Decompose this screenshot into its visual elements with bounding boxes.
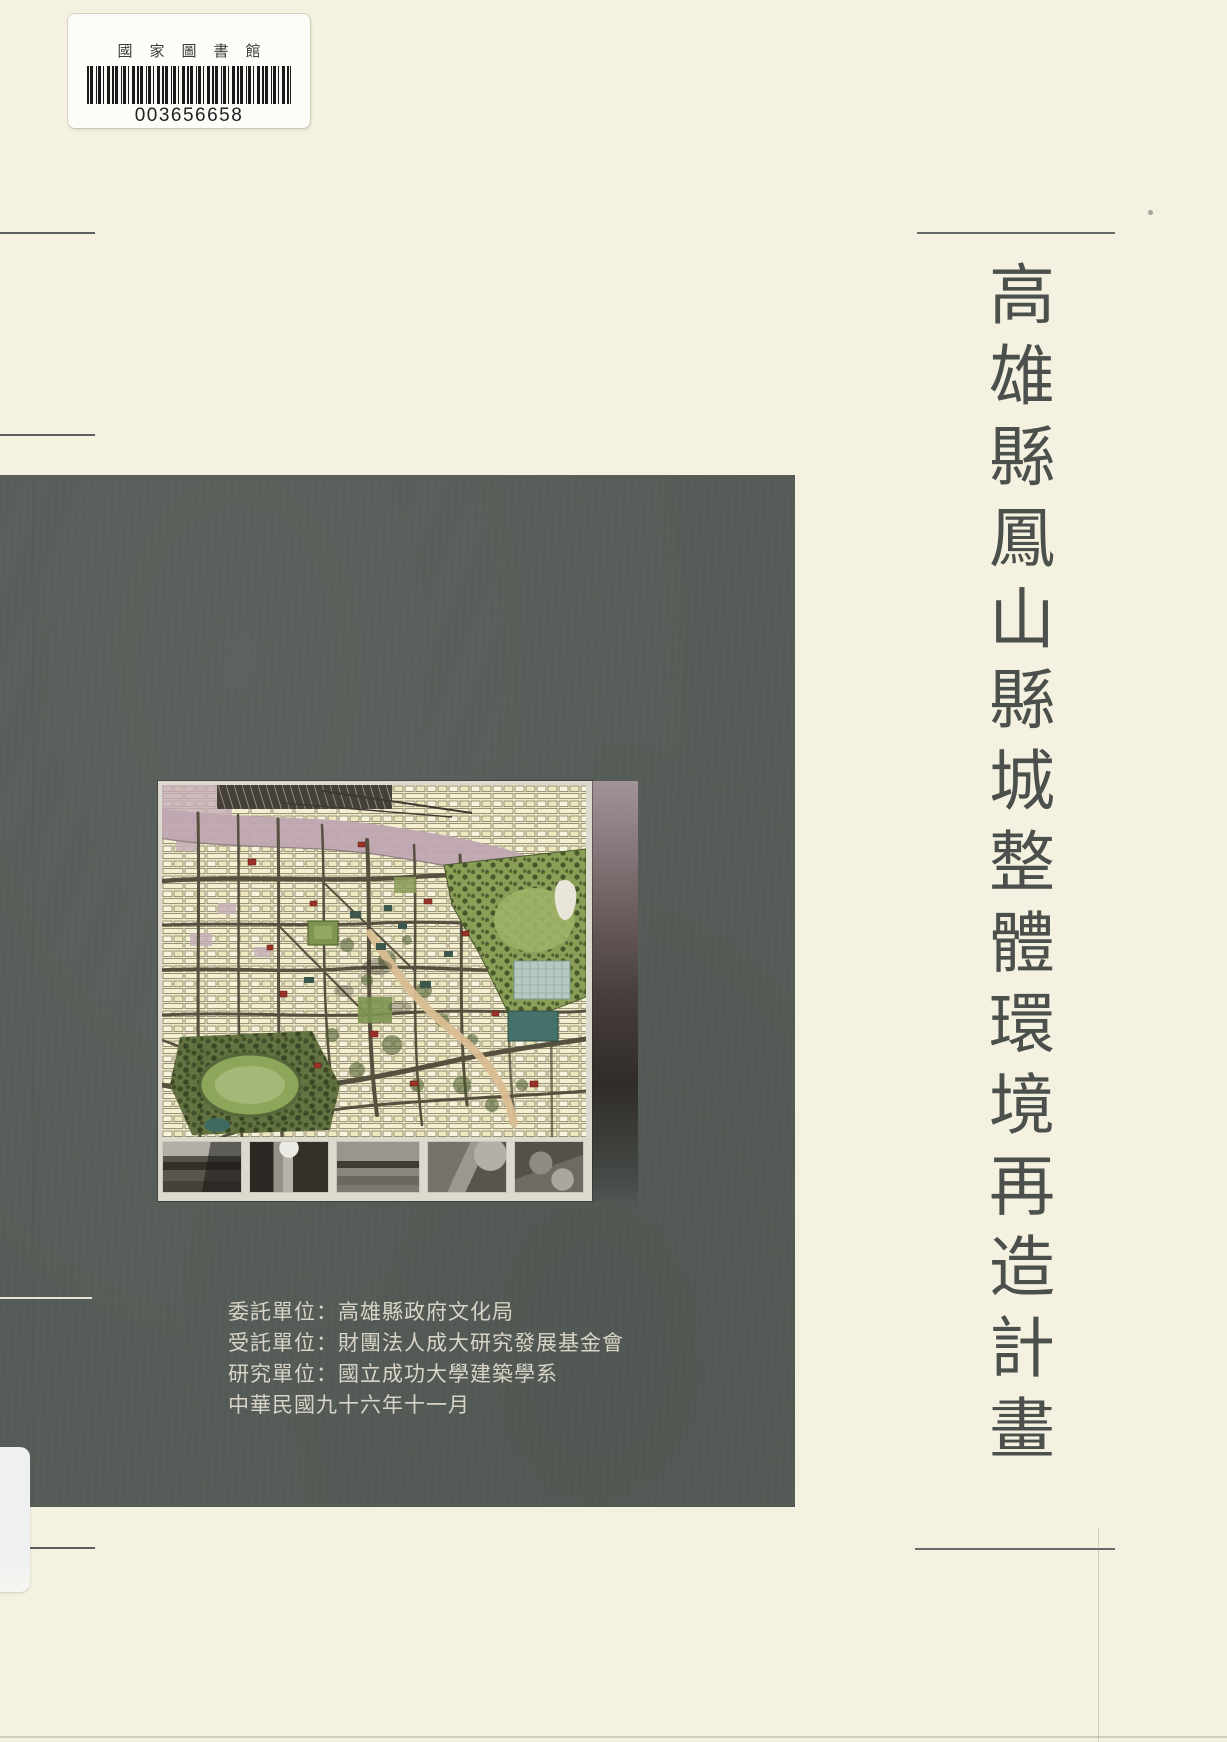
credit-research-unit: 研究單位：國立成功大學建築學系 <box>228 1359 624 1390</box>
site-photo-courtyard-house <box>162 1141 242 1193</box>
book-cover-scan: { "colors": { "page_background": "#f4f1e… <box>0 0 1227 1742</box>
credit-commissioner: 委託單位：高雄縣政府文化局 <box>228 1297 624 1328</box>
spine-sticker <box>0 1447 30 1592</box>
figure-shadow-fade <box>592 781 638 1201</box>
credits-block: 委託單位：高雄縣政府文化局 受託單位：財團法人成大研究發展基金會 研究單位：國立… <box>228 1297 624 1421</box>
library-name: 國家圖書館 <box>100 40 277 61</box>
left-tick-top <box>0 232 95 234</box>
library-barcode-label: 國家圖書館 003656658 <box>68 14 310 128</box>
gridded-pond <box>514 961 570 999</box>
cover-title-vertical: 高雄縣鳳山縣城整體環境再造計畫 <box>981 260 1051 1510</box>
site-photo-wall-ruin <box>427 1141 507 1193</box>
title-rule-top <box>917 232 1115 234</box>
paper-speck <box>1148 210 1153 215</box>
site-photo-alley <box>249 1141 329 1193</box>
site-photo-field-building <box>336 1141 420 1193</box>
barcode-bars-icon <box>87 66 291 104</box>
page-edge-line <box>1098 1528 1099 1742</box>
credit-trustee: 受託單位：財團法人成大研究發展基金會 <box>228 1328 624 1359</box>
stadium-oval <box>170 1031 340 1135</box>
left-tick-second <box>0 434 95 436</box>
figure-frame <box>158 781 592 1201</box>
barcode-number: 003656658 <box>135 105 244 127</box>
credit-date: 中華民國九十六年十一月 <box>228 1390 624 1421</box>
site-photo-rock-detail <box>514 1141 584 1193</box>
teal-pool <box>508 1011 558 1041</box>
panel-crease <box>33 475 34 1507</box>
master-plan-map <box>162 785 586 1137</box>
left-tick-light <box>0 1297 92 1299</box>
site-photo-strip <box>162 1141 586 1193</box>
title-rule-bottom <box>915 1548 1115 1550</box>
map-graphic <box>162 785 586 1137</box>
page-bottom-edge <box>0 1736 1227 1738</box>
